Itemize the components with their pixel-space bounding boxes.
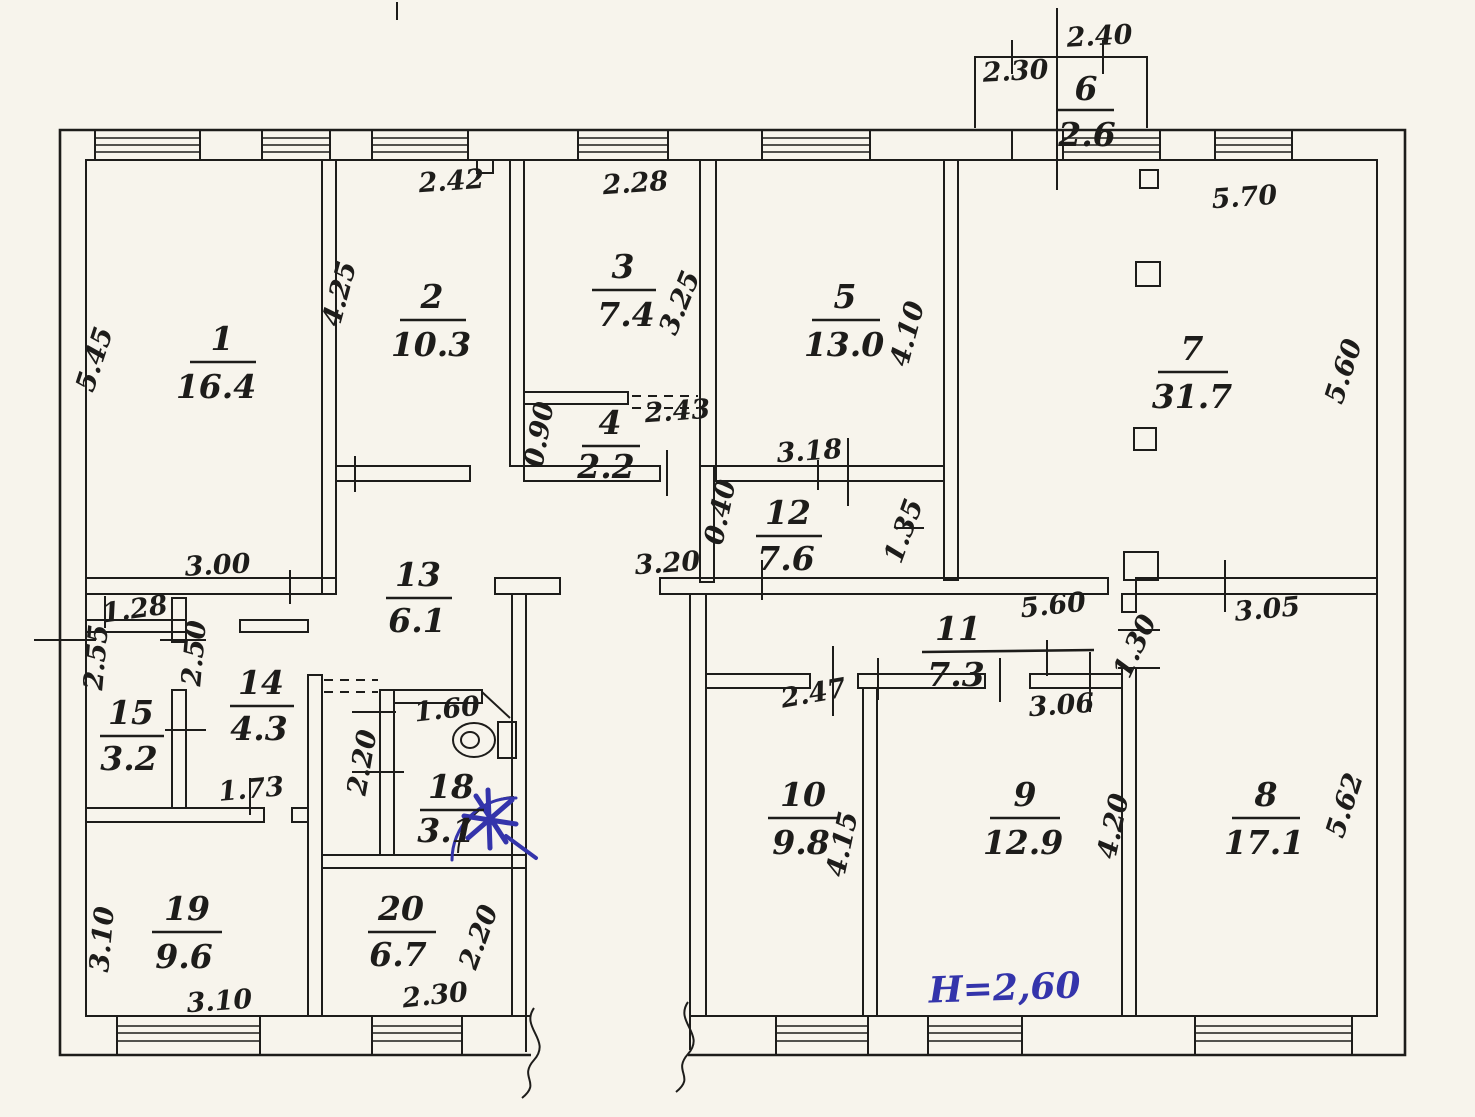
outer-walls <box>60 130 1405 1098</box>
dim-room12-top: 3.18 <box>776 434 844 470</box>
room-9-area: 12.9 <box>983 823 1063 862</box>
dim-room14-left: 2.50 <box>176 619 213 688</box>
window <box>762 130 870 160</box>
room-15-area: 3.2 <box>100 739 157 778</box>
dimension-labels: 2.40 2.30 5.70 5.60 2.42 2.28 4.25 5.45 … <box>70 19 1370 1019</box>
window <box>372 1016 462 1055</box>
room-label-18: 18 3.1 <box>417 767 484 850</box>
dim-room2-left: 4.25 <box>316 258 363 330</box>
room-8-area: 17.1 <box>1224 823 1304 862</box>
window <box>928 1016 1022 1055</box>
dim-room1-left: 5.45 <box>70 323 120 395</box>
room-label-7: 7 31.7 <box>1152 329 1232 416</box>
room-10-area: 9.8 <box>772 823 829 862</box>
room-18-area: 3.1 <box>417 811 474 850</box>
room-label-20: 20 6.7 <box>368 889 436 974</box>
dim-room10-top: 2.47 <box>777 673 848 715</box>
room-3-area: 7.4 <box>597 295 654 334</box>
room-label-14: 14 4.3 <box>230 663 294 748</box>
dim-room7-right: 5.60 <box>1319 335 1369 407</box>
dim-room12-left: 0.40 <box>699 477 743 548</box>
dim-room15-left: 2.55 <box>78 623 115 692</box>
dim-room7-top: 5.70 <box>1211 180 1279 216</box>
dim-room3-right: 3.25 <box>653 267 706 340</box>
dim-room19-left: 3.10 <box>84 905 121 973</box>
room-label-13: 13 6.1 <box>386 555 452 640</box>
room-20-number: 20 <box>377 889 424 928</box>
room-2-area: 10.3 <box>391 325 471 364</box>
room-13-area: 6.1 <box>388 601 445 640</box>
window <box>372 130 468 160</box>
room-10-number: 10 <box>780 775 826 814</box>
windows <box>95 130 1352 1055</box>
room-label-5: 5 13.0 <box>804 277 884 364</box>
room-12-area: 7.6 <box>757 539 814 578</box>
room-label-1: 1 16.4 <box>176 319 256 406</box>
room-8-number: 8 <box>1254 775 1278 814</box>
room-3-number: 3 <box>612 247 635 286</box>
dim-room18-left: 2.20 <box>341 727 383 798</box>
dim-room20-bottom: 2.30 <box>400 977 470 1015</box>
room-label-11: 11 7.3 <box>922 609 1094 694</box>
dim-room15-top: 1.28 <box>100 590 170 630</box>
dim-room2-top: 2.42 <box>417 164 486 200</box>
room-6-number: 6 <box>1075 69 1098 108</box>
dim-room9-top: 3.06 <box>1028 688 1096 724</box>
floor-plan-drawing: 1 16.4 2 10.3 3 7.4 4 2.2 5 13.0 6 2.6 <box>0 0 1475 1117</box>
window <box>262 130 330 160</box>
window <box>95 130 200 160</box>
room-label-19: 19 9.6 <box>152 889 222 976</box>
room-label-3: 3 7.4 <box>592 247 656 334</box>
window <box>1215 130 1292 160</box>
room-label-4: 4 2.2 <box>576 403 640 486</box>
room-14-number: 14 <box>238 663 284 702</box>
window <box>117 1016 260 1055</box>
room-12-number: 12 <box>765 493 811 532</box>
height-note: H=2,60 <box>927 964 1081 1011</box>
room-14-area: 4.3 <box>230 709 287 748</box>
toilet-icon <box>453 722 516 758</box>
dim-room11-top: 5.60 <box>1019 587 1088 625</box>
pilaster <box>1124 552 1158 580</box>
room-7-area: 31.7 <box>1152 377 1232 416</box>
room-11-number: 11 <box>935 609 981 648</box>
room-label-6: 6 2.6 <box>1057 69 1115 154</box>
room-label-15: 15 3.2 <box>100 693 164 778</box>
dim-room8-right: 5.62 <box>1320 769 1370 841</box>
room-9-number: 9 <box>1014 775 1037 814</box>
room-18-number: 18 <box>428 767 474 806</box>
window <box>776 1016 868 1055</box>
dim-room9-right: 4.20 <box>1092 791 1136 862</box>
dim-room12-right: 1.35 <box>878 495 930 567</box>
window <box>1195 1016 1352 1055</box>
room-19-number: 19 <box>164 889 210 928</box>
room-6-area: 2.6 <box>1057 115 1115 154</box>
dim-room14-bottom: 1.73 <box>217 771 285 808</box>
room-11-area: 7.3 <box>927 655 984 694</box>
dim-room8-top: 3.05 <box>1233 591 1301 628</box>
room-19-area: 9.6 <box>155 937 212 976</box>
dim-room11-right: 1.30 <box>1107 610 1163 683</box>
dim-room5-right: 4.10 <box>884 298 931 370</box>
window <box>578 130 668 160</box>
room-15-number: 15 <box>108 693 154 732</box>
dim-room1-bottom: 3.00 <box>184 548 252 582</box>
dim-room19-bottom: 3.10 <box>186 984 254 1020</box>
interior-walls <box>86 160 1377 1016</box>
room-7-number: 7 <box>1181 329 1204 368</box>
vent-shafts <box>477 160 1160 450</box>
room-4-area: 2.2 <box>576 447 634 486</box>
room-label-8: 8 17.1 <box>1224 775 1304 862</box>
room-2-number: 2 <box>420 277 444 316</box>
room-5-number: 5 <box>834 277 857 316</box>
room-label-2: 2 10.3 <box>391 277 471 364</box>
dim-room10-right: 4.15 <box>821 809 865 880</box>
dim-balcony-top: 2.40 <box>1065 19 1134 53</box>
dim-room4-top: 2.43 <box>643 394 712 430</box>
scanned-floor-plan: 1 16.4 2 10.3 3 7.4 4 2.2 5 13.0 6 2.6 <box>0 0 1475 1117</box>
dim-room3-top: 2.28 <box>601 166 670 202</box>
room-4-number: 4 <box>599 403 622 442</box>
room-label-9: 9 12.9 <box>983 775 1063 862</box>
entrance-break-left <box>522 1008 540 1098</box>
dim-corridor13: 3.20 <box>634 546 702 582</box>
room-1-area: 16.4 <box>176 367 256 406</box>
room-5-area: 13.0 <box>804 325 884 364</box>
room-13-number: 13 <box>395 555 441 594</box>
room-1-number: 1 <box>211 319 234 358</box>
dim-room20-right: 2.20 <box>453 901 505 975</box>
dim-balcony-left: 2.30 <box>981 54 1050 88</box>
room-20-area: 6.7 <box>369 935 426 974</box>
room-label-12: 12 7.6 <box>756 493 822 578</box>
